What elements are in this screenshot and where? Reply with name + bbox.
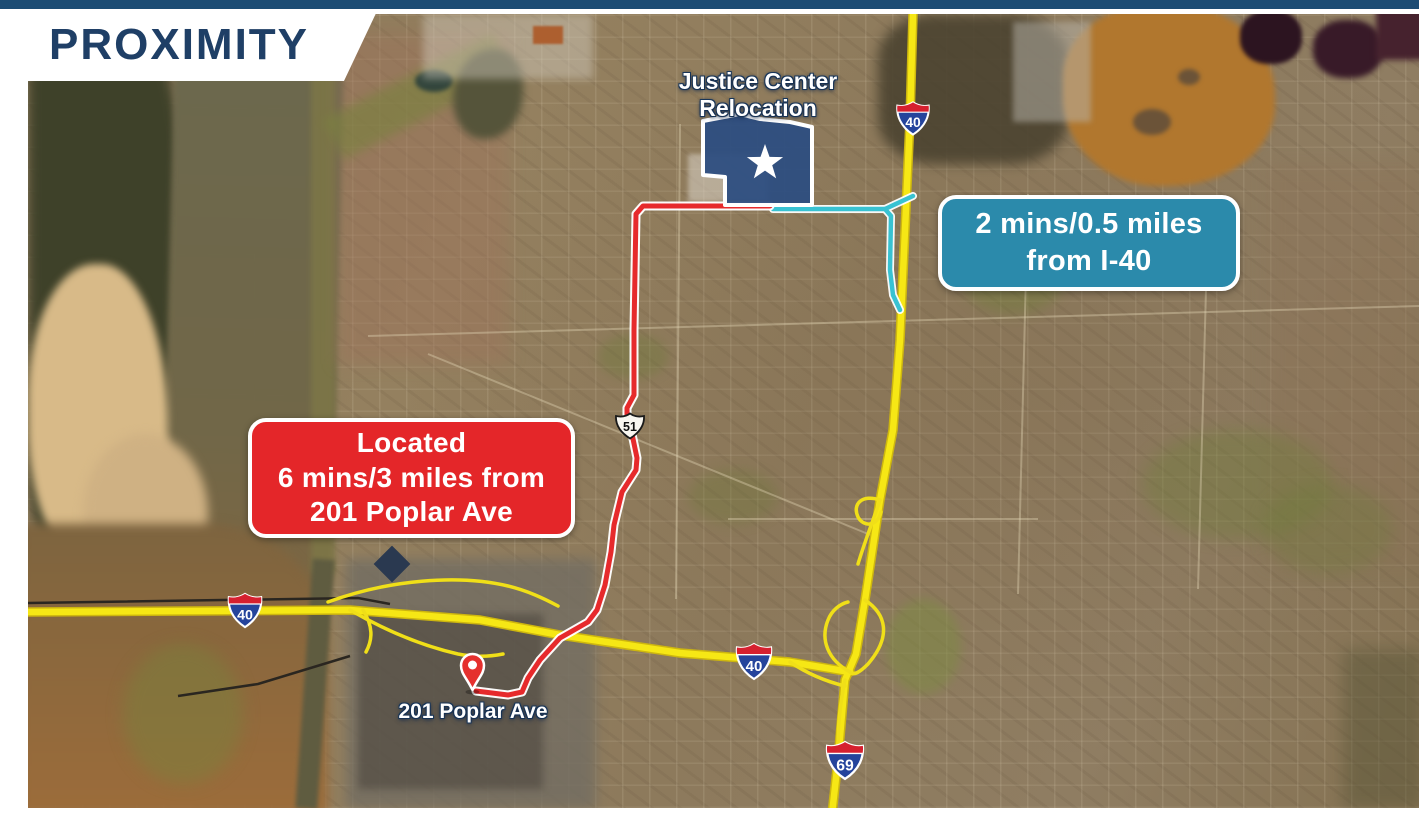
justice-center-label-line2: Relocation xyxy=(628,95,888,122)
i40-shield-mid: 40 xyxy=(737,644,771,679)
callout-i40: 2 mins/0.5 miles from I-40 xyxy=(938,195,1240,291)
satellite-map: 40 40 40 69 51 xyxy=(28,14,1419,808)
svg-text:40: 40 xyxy=(237,608,253,624)
page-title: PROXIMITY xyxy=(49,20,309,70)
svg-text:51: 51 xyxy=(623,420,637,434)
us51-shield: 51 xyxy=(616,414,644,439)
i40-shield-north: 40 xyxy=(897,102,929,134)
proximity-slide: 40 40 40 69 51 xyxy=(0,0,1419,814)
justice-center-site-polygon xyxy=(703,114,812,205)
poplar-ave-label: 201 Poplar Ave xyxy=(373,700,573,724)
callout-poplar-line3: 201 Poplar Ave xyxy=(310,495,513,530)
callout-poplar: Located 6 mins/3 miles from 201 Poplar A… xyxy=(248,418,575,538)
callout-i40-line1: 2 mins/0.5 miles xyxy=(975,206,1202,243)
justice-center-label: Justice Center Relocation xyxy=(628,68,888,122)
callout-i40-line2: from I-40 xyxy=(1026,243,1151,280)
title-band: PROXIMITY xyxy=(0,9,378,81)
justice-center-label-line1: Justice Center xyxy=(628,68,888,95)
svg-text:40: 40 xyxy=(905,115,921,130)
callout-poplar-line2: 6 mins/3 miles from xyxy=(278,461,545,496)
i40-shield-bridge: 40 xyxy=(229,594,262,627)
svg-text:40: 40 xyxy=(746,658,763,675)
top-accent-bar xyxy=(0,0,1419,9)
callout-poplar-line1: Located xyxy=(357,426,466,461)
map-overlay: 40 40 40 69 51 xyxy=(28,14,1419,808)
route-to-i40 xyxy=(773,196,913,310)
svg-text:69: 69 xyxy=(836,758,854,775)
